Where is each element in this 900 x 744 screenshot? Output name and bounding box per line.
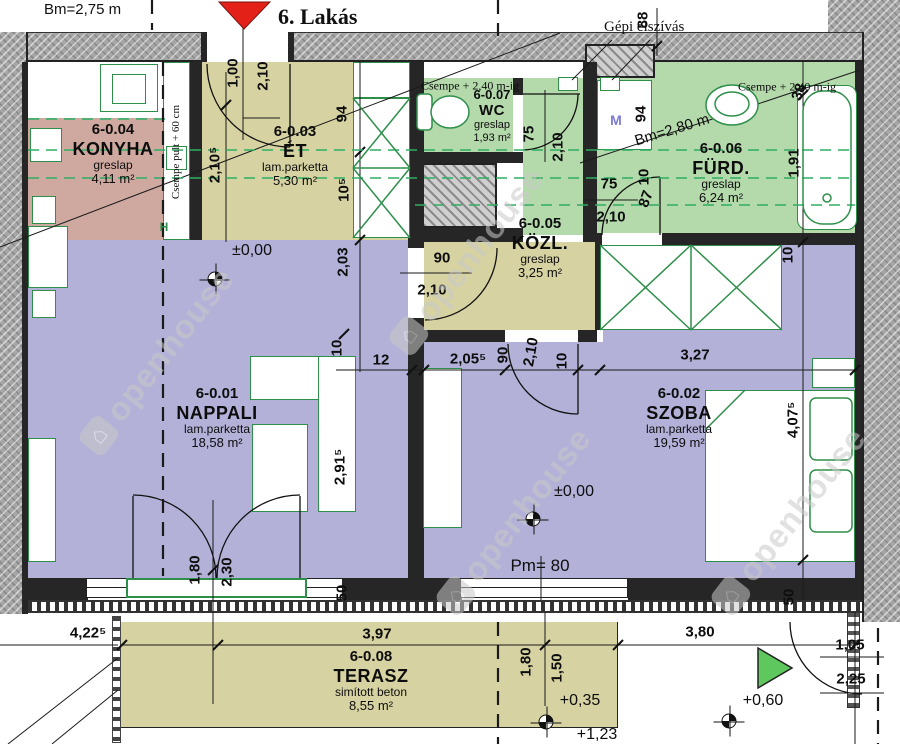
dimension-label: 88: [635, 12, 652, 29]
room-label-wc: 6-0.07 WC greslap 1,93 m²: [473, 88, 510, 144]
door-gap: [513, 95, 523, 152]
room-floor: lam.parketta: [176, 423, 257, 436]
dimension-label: 4,22⁵: [70, 625, 106, 642]
dimension-label: 90: [495, 347, 512, 364]
dimension-label: 12: [373, 352, 390, 369]
room-name: SZOBA: [646, 403, 712, 423]
exterior-wall-top-right-corner: [828, 0, 900, 32]
installation-shaft: [412, 163, 497, 228]
dimension-label: 2,10: [255, 61, 272, 90]
dimension-label: 2,10⁵: [207, 147, 224, 183]
room-name: NAPPALI: [176, 403, 257, 423]
dimension-label: 75: [601, 176, 618, 193]
insulation-band: [28, 600, 862, 613]
level-label: ±0,00: [232, 242, 272, 260]
dimension-label: 10: [329, 340, 346, 357]
room-floor: lam.parketta: [262, 161, 328, 174]
room-area: 6,24 m²: [692, 191, 750, 206]
room-label-konyha: 6-0.04 KONYHA greslap 4,11 m²: [72, 122, 153, 187]
dimension-label: 2,10: [417, 282, 446, 299]
entry-marker-triangle: [219, 2, 270, 29]
kitchen-sink-basin: [112, 74, 146, 104]
level-label: +0,60: [743, 692, 783, 710]
door-gap: [602, 233, 662, 245]
room-floor: greslap: [512, 253, 569, 266]
wall: [28, 578, 88, 600]
dining-chair: [32, 196, 56, 224]
room-floor: greslap: [473, 119, 510, 131]
pillar: [847, 612, 860, 708]
tv-cabinet: [28, 438, 56, 562]
annotation-label: Csempe + 2,40 m-ig: [421, 79, 519, 94]
annotation-label: Pm= 80: [510, 556, 569, 576]
room-id: 6-0.04: [72, 122, 153, 139]
annotation-label: H: [160, 220, 169, 234]
wall: [578, 330, 597, 342]
wall: [583, 62, 597, 228]
bracket: [600, 77, 620, 91]
room-id: 6-0.05: [512, 216, 569, 233]
room-area: 8,55 m²: [334, 699, 409, 714]
entry-door-gap: [205, 32, 290, 62]
level-marker: [539, 715, 554, 730]
entry-door-jamb: [201, 32, 207, 62]
room-floor: simított beton: [334, 686, 409, 699]
room-area: 1,93 m²: [473, 132, 510, 144]
room-name: KÖZL.: [512, 233, 569, 253]
dimension-label: 1,05: [835, 637, 864, 654]
coffee-table: [252, 424, 308, 512]
terrace-railing: [112, 616, 121, 743]
dimension-label: 94: [633, 106, 650, 123]
dimension-label: 75: [521, 126, 538, 143]
room-id: 6-0.06: [692, 141, 750, 158]
room-label-szoba: 6-0.02 SZOBA lam.parketta 19,59 m²: [646, 386, 712, 451]
fridge: [30, 128, 62, 162]
room-name: TERASZ: [334, 666, 409, 686]
exterior-wall-right: [862, 32, 900, 622]
dimension-label: 50: [334, 585, 351, 602]
wall: [628, 578, 862, 600]
dimension-label: 94: [334, 106, 351, 123]
wall: [342, 578, 462, 600]
dimension-label: 2,10: [550, 132, 567, 161]
room-area: 3,25 m²: [512, 266, 569, 281]
tall-cabinet: [423, 368, 462, 528]
dimension-label: 1,00: [225, 58, 242, 87]
dimension-label: 4,07⁵: [785, 402, 802, 438]
floor-plan: Bm=2,75 m 6. Lakás Gépi elszívás 6-0.04 …: [0, 0, 900, 744]
dimension-label: 3,80: [685, 624, 714, 641]
level-marker: [526, 512, 541, 527]
wall: [408, 330, 505, 342]
room-id: 6-0.03: [262, 124, 328, 141]
dimension-label: 2,03: [335, 247, 352, 276]
annotation-label: +1,23: [577, 726, 617, 744]
wall: [583, 228, 597, 242]
dimension-label: 1,80: [187, 555, 204, 584]
szoba-window: [460, 578, 628, 598]
room-label-kozlekedo: 6-0.05 KÖZL. greslap 3,25 m²: [512, 216, 569, 281]
room-id: 6-0.08: [334, 649, 409, 666]
dimension-label: 2,30: [219, 557, 236, 586]
room-label-terasz: 6-0.08 TERASZ simított beton 8,55 m²: [334, 649, 409, 714]
room-floor: lam.parketta: [646, 423, 712, 436]
dining-chair: [32, 290, 56, 318]
wardrobe-et: [353, 98, 410, 238]
building-entry-arrow: [758, 648, 792, 688]
dining-table: [28, 226, 68, 288]
bed: [705, 390, 855, 562]
level-label: +0,35: [560, 692, 600, 710]
annotation-label: M: [610, 112, 622, 128]
entry-door-jamb: [288, 32, 294, 62]
room-name: WC: [473, 103, 510, 120]
dimension-label: 10: [636, 169, 653, 186]
room-area: 18,58 m²: [176, 436, 257, 451]
wall: [662, 233, 860, 245]
room-label-etkezo: 6-0.03 ÉT lam.parketta 5,30 m²: [262, 124, 328, 189]
dimension-label: 2,10: [596, 209, 625, 226]
annotation-label: Csempe pult + 60 cm: [170, 105, 182, 199]
ceiling-height-label: Bm=2,75 m: [44, 1, 121, 18]
room-area: 4,11 m²: [72, 172, 153, 187]
room-area: 19,59 m²: [646, 436, 712, 451]
dimension-label: 2,05⁵: [450, 351, 486, 368]
dimension-label: 1,91: [786, 148, 803, 177]
level-marker: [208, 272, 223, 287]
annotation-label: Csempe + 2,40 m-ig: [738, 80, 836, 95]
window: [86, 578, 130, 598]
wardrobe-et: [353, 62, 410, 98]
dimension-label: 10: [554, 353, 571, 370]
level-label: ±0,00: [554, 483, 594, 501]
sofa: [318, 356, 356, 512]
bathtub: [797, 85, 857, 230]
dimension-label: 10⁵: [336, 178, 353, 202]
terrace-door-frame: [126, 578, 307, 598]
dimension-label: 2,91⁵: [332, 449, 349, 485]
kitchen-tall-cabinet: [190, 62, 202, 240]
room-floor: greslap: [72, 159, 153, 172]
exterior-wall-top: [0, 32, 900, 62]
wall: [408, 228, 523, 242]
dimension-label: 1,50: [549, 653, 566, 682]
wardrobe-szoba: [600, 245, 782, 330]
nightstand: [812, 358, 855, 388]
room-floor: greslap: [692, 178, 750, 191]
room-id: 6-0.02: [646, 386, 712, 403]
room-area: 5,30 m²: [262, 174, 328, 189]
dimension-label: 1,80: [518, 647, 535, 676]
flat-title: 6. Lakás: [278, 4, 357, 30]
dimension-label: 50: [781, 589, 798, 606]
room-label-furdo: 6-0.06 FÜRD. greslap 6,24 m²: [692, 141, 750, 206]
dimension-label: 10: [780, 247, 797, 264]
wall: [408, 342, 424, 578]
room-name: FÜRD.: [692, 158, 750, 178]
room-label-nappali: 6-0.01 NAPPALI lam.parketta 18,58 m²: [176, 386, 257, 451]
dimension-label: 2,25: [836, 671, 865, 688]
room-id: 6-0.01: [176, 386, 257, 403]
dimension-label: 3,97: [362, 626, 391, 643]
room-name: ÉT: [262, 141, 328, 161]
wall: [408, 152, 523, 163]
dimension-label: 3,27: [680, 347, 709, 364]
room-name: KONYHA: [72, 139, 153, 159]
bracket: [558, 77, 578, 91]
dimension-label: 90: [434, 250, 451, 267]
level-marker: [722, 714, 737, 729]
